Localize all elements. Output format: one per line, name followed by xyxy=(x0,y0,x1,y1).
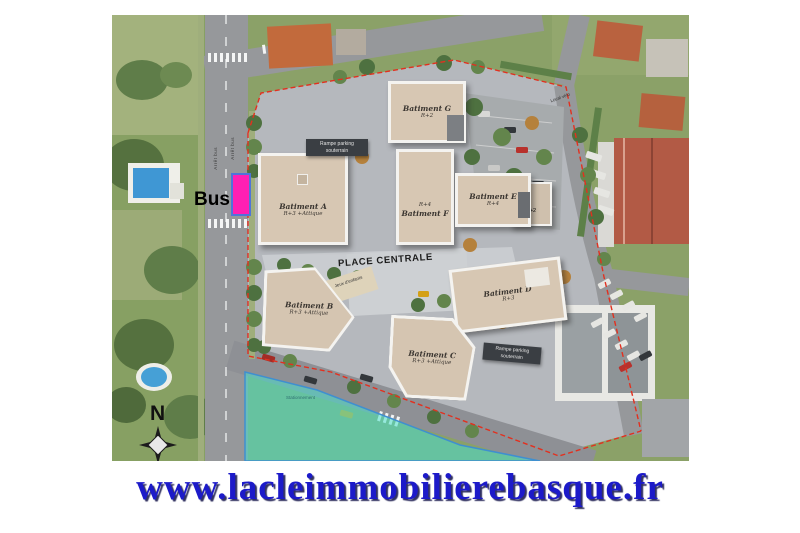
parking-ramp-label-north: Rampe parking souterrain xyxy=(306,139,368,156)
bus-stop-highlight xyxy=(231,173,251,216)
building-g-shaft xyxy=(447,115,464,141)
building-e-floors: R+4 xyxy=(469,201,516,208)
parking-area-label: Stationnement xyxy=(286,395,315,400)
building-e-name: Batiment E xyxy=(469,192,516,201)
building-g-floors: R+2 xyxy=(403,113,451,120)
marketing-flyer: Batiment G R+2 Batiment A R+3 +Attique R… xyxy=(0,0,800,533)
building-e-shaft xyxy=(518,192,530,218)
building-a-skylight xyxy=(297,174,308,185)
bus-stop-caption-west: Arrêt bus xyxy=(213,147,218,170)
building-g: Batiment G R+2 xyxy=(388,81,466,143)
building-e: Batiment E R+4 xyxy=(455,173,531,227)
building-f: R+4 Batiment F xyxy=(396,149,454,245)
site-plan-image: Batiment G R+2 Batiment A R+3 +Attique R… xyxy=(112,15,689,461)
north-label: N xyxy=(150,402,165,426)
bus-stop-caption-east: Arrêt bus xyxy=(230,137,235,160)
bus-label: Bus xyxy=(194,189,230,211)
building-d: Batiment D R+3 xyxy=(449,256,568,333)
building-g-name: Batiment G xyxy=(403,104,451,113)
building-f-floors: R+4 xyxy=(401,202,448,209)
building-a: Batiment A R+3 +Attique xyxy=(258,153,348,245)
building-a-name: Batiment A xyxy=(279,202,327,211)
building-d-terrace xyxy=(524,267,550,288)
building-f-name: Batiment F xyxy=(401,209,448,218)
website-url: www.lacleimmobilierebasque.fr xyxy=(0,466,800,509)
building-a-floors: R+3 +Attique xyxy=(279,211,327,218)
